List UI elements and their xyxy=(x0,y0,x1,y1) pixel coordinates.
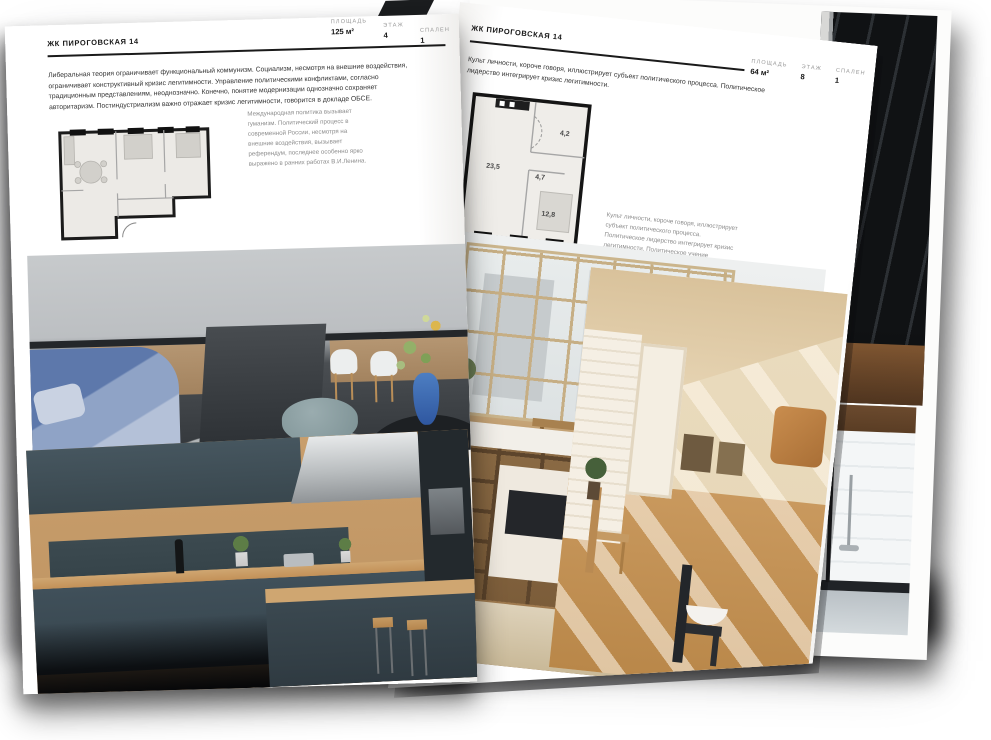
shower-mixer-shape xyxy=(839,545,859,552)
bar-stool-shape xyxy=(373,617,396,674)
apartment-stats: ПЛОЩАДЬ 64 м² ЭТАЖ 8 СПАЛЕН 1 xyxy=(750,59,866,88)
stat-label: ЭТАЖ xyxy=(801,64,822,72)
hob-shape xyxy=(509,102,514,107)
sink-shape xyxy=(499,101,504,106)
room-area-label: 4,2 xyxy=(560,130,571,138)
flowers-shape xyxy=(391,314,453,378)
stat-floor: ЭТАЖ 8 xyxy=(800,64,822,83)
photo-sunny-attic-room xyxy=(549,267,848,694)
stat-value: 1 xyxy=(834,76,865,88)
white-chair-shape xyxy=(330,349,358,375)
stat-floor: ЭТАЖ 4 xyxy=(383,22,404,46)
door-swing xyxy=(122,223,136,237)
kitchen-island-shape xyxy=(265,579,477,687)
room-area-label: 12,8 xyxy=(541,211,555,219)
photo-kitchen-monochrome xyxy=(27,244,471,462)
stat-value: 8 xyxy=(800,72,821,83)
stat-label: ЭТАЖ xyxy=(383,22,404,29)
floorplan-walls xyxy=(460,94,590,245)
stat-value: 1 xyxy=(420,35,450,45)
room-area-label: 4,7 xyxy=(535,174,546,182)
page-title: ЖК ПИРОГОВСКАЯ 14 xyxy=(471,23,563,42)
stat-label: СПАЛЕН xyxy=(420,27,450,34)
stat-value: 4 xyxy=(383,30,404,40)
stat-value: 125 м² xyxy=(331,26,368,36)
saucepan-shape xyxy=(283,553,314,567)
picture-frames-shape xyxy=(680,430,754,477)
brochure-mockup: ЖК ПИРОГОВСКАЯ 14 ПЛОЩАДЬ 64 м² ЭТАЖ 8 С… xyxy=(0,0,991,740)
stat-label: ПЛОЩАДЬ xyxy=(331,18,368,25)
bottle-shape xyxy=(175,539,185,573)
stat-bedrooms: СПАЛЕН 1 xyxy=(834,68,866,88)
stat-area: ПЛОЩАДЬ 64 м² xyxy=(750,59,788,80)
room-area-label: 23,5 xyxy=(486,163,500,171)
plant-shape xyxy=(226,534,256,569)
plant-shape xyxy=(572,451,617,507)
floorplan-right: 23,5 4,7 4,2 12,8 xyxy=(451,87,598,252)
stat-area: ПЛОЩАДЬ 125 м² xyxy=(331,18,368,47)
shower-pipe-shape xyxy=(847,475,853,547)
left-page: ЖК ПИРОГОВСКАЯ 14 ПЛОЩАДЬ 125 м² ЭТАЖ 4 … xyxy=(5,14,477,694)
photo-kitchen-green xyxy=(26,429,477,694)
page-title: ЖК ПИРОГОВСКАЯ 14 xyxy=(47,37,139,49)
apartment-stats: ПЛОЩАДЬ 125 м² ЭТАЖ 4 СПАЛЕН 1 xyxy=(331,16,451,47)
armchair-shape xyxy=(770,405,828,468)
bar-stool-shape xyxy=(407,619,430,676)
wall-oven-shape xyxy=(428,487,464,535)
intro-paragraph: Либеральная теория ограничивает функцион… xyxy=(48,61,423,114)
floorplan-left xyxy=(49,113,221,256)
stat-value: 64 м² xyxy=(750,67,787,80)
plant-shape xyxy=(333,536,357,564)
floorplan-caption: Международная политика вызывает гуманизм… xyxy=(247,106,367,170)
stat-bedrooms: СПАЛЕН 1 xyxy=(420,27,450,45)
